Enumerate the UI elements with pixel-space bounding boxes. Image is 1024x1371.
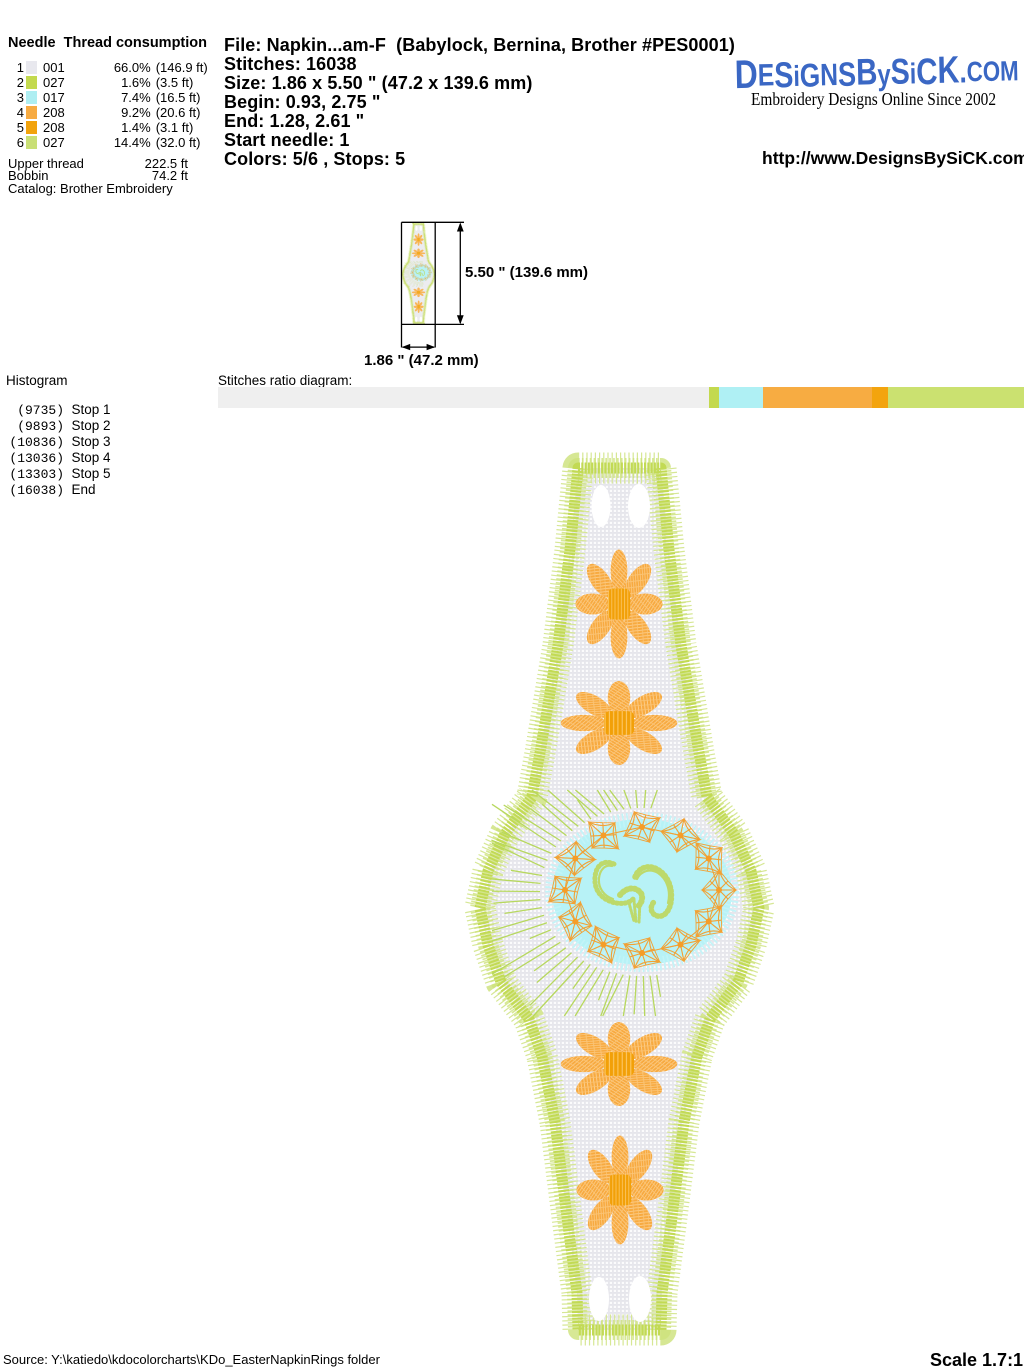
- svg-text:Embroidery Designs Online Sinc: Embroidery Designs Online Since 2002: [751, 89, 996, 109]
